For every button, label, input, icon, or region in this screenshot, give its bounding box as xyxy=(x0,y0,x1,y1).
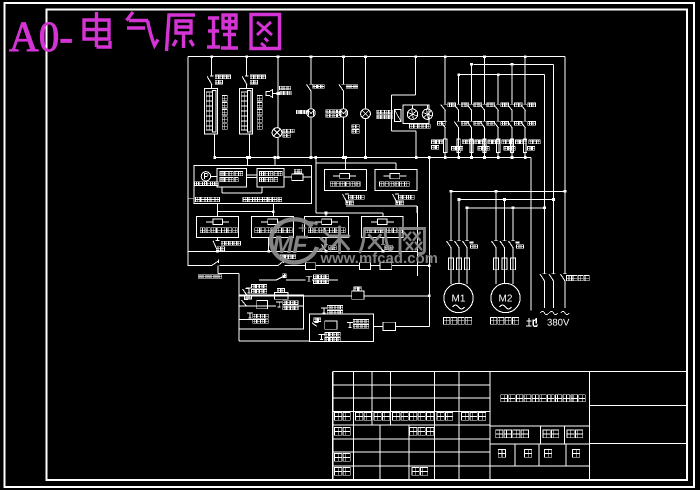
svg-text:MF: MF xyxy=(273,231,309,259)
svg-text:M1: M1 xyxy=(452,294,466,305)
svg-text:M2: M2 xyxy=(499,294,513,305)
svg-text:www.mfcad.com: www.mfcad.com xyxy=(320,251,439,267)
svg-text:380V: 380V xyxy=(547,317,570,328)
svg-text:A0-: A0- xyxy=(9,14,73,61)
